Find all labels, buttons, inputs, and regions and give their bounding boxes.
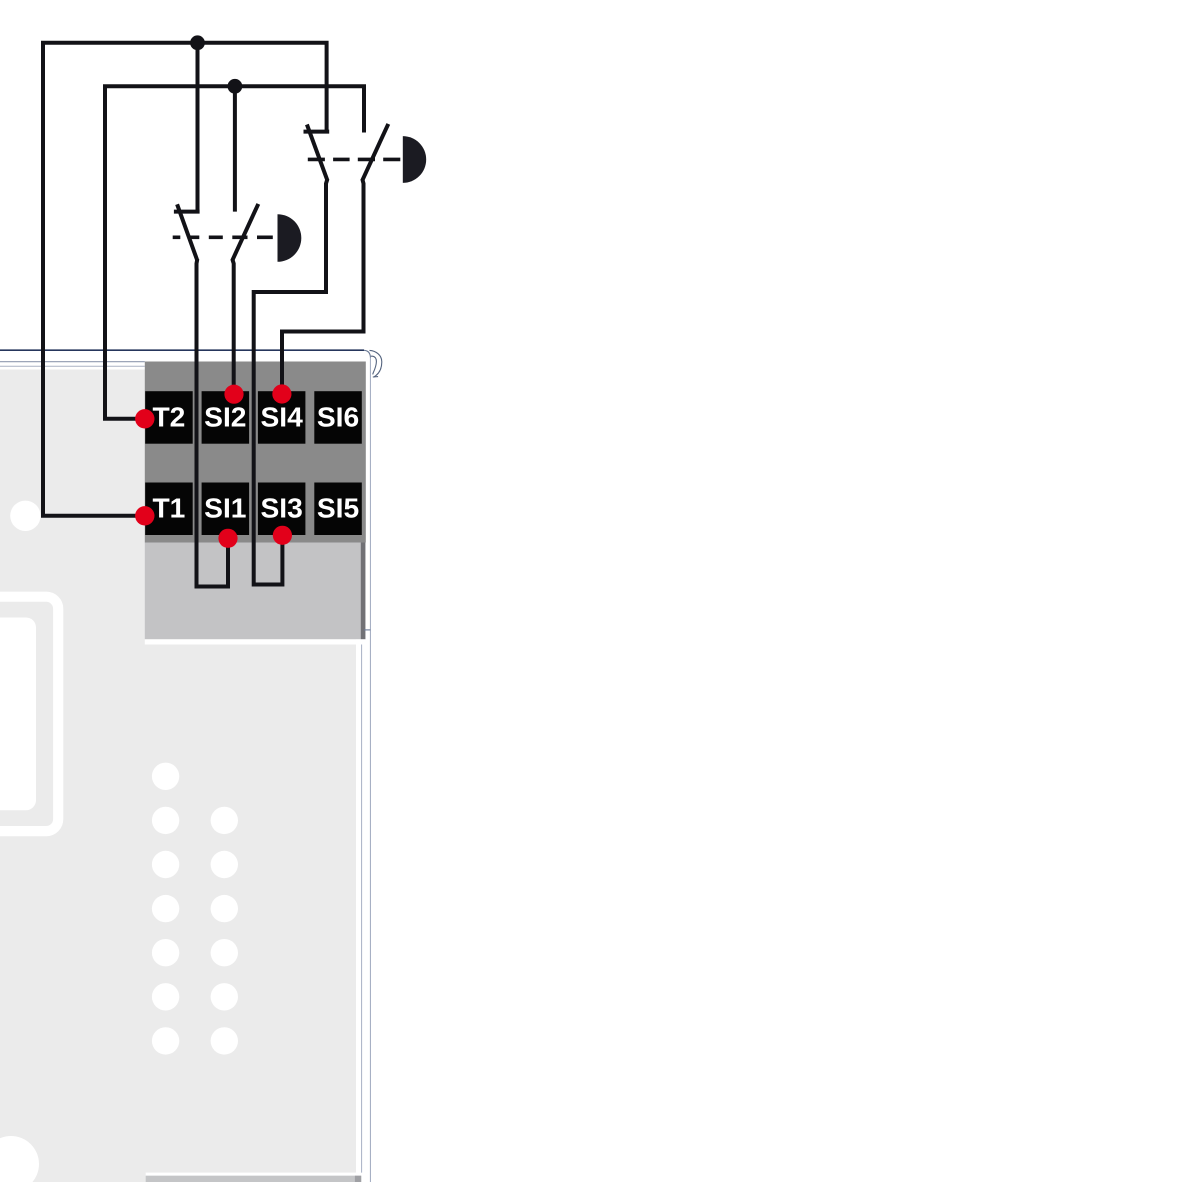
- svg-text:SI4: SI4: [260, 400, 303, 432]
- svg-text:SI5: SI5: [317, 492, 359, 524]
- svg-text:T1: T1: [152, 492, 185, 524]
- svg-text:SI3: SI3: [260, 492, 302, 524]
- svg-text:SI6: SI6: [317, 400, 359, 432]
- svg-text:T2: T2: [152, 400, 185, 432]
- svg-text:SI2: SI2: [204, 400, 246, 432]
- svg-text:SI1: SI1: [204, 492, 246, 524]
